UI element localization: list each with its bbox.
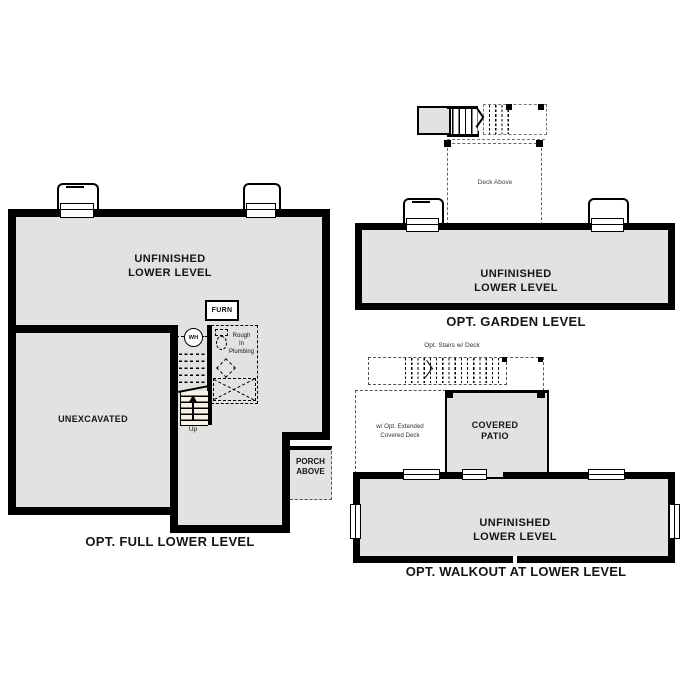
- wall: [355, 303, 675, 310]
- deck-post: [538, 104, 544, 110]
- plan-caption-full-lower: OPT. FULL LOWER LEVEL: [10, 534, 330, 550]
- window-icon: [403, 469, 440, 480]
- porch-above-label: PORCH ABOVE: [291, 457, 330, 477]
- extended-deck-label-line: w/ Opt. Extended: [376, 423, 423, 430]
- floorplan-sheet: FURN WH Up Rough In Plumbing: [0, 0, 687, 687]
- patio-post: [445, 390, 453, 398]
- window-icon: [588, 469, 625, 480]
- wall: [170, 325, 178, 533]
- floor-unexcavated: [16, 432, 170, 507]
- window-icon: [246, 203, 276, 218]
- room-label-line: LOWER LEVEL: [473, 531, 557, 543]
- wall: [668, 223, 675, 310]
- stairs-up-label: Up: [178, 426, 208, 434]
- room-label-unfinished-lower: UNFINISHED LOWER LEVEL: [90, 253, 250, 281]
- wall: [355, 223, 675, 230]
- deck-post: [444, 140, 451, 147]
- water-heater-label: WH: [189, 335, 199, 341]
- plan-caption-garden: OPT. GARDEN LEVEL: [396, 314, 636, 330]
- wall: [322, 209, 330, 440]
- patio-post: [537, 390, 545, 398]
- deck-stairs-solid: [447, 106, 479, 137]
- opt-stairs-label: Opt. Stairs w/ Deck: [372, 342, 532, 350]
- plumbing-label-line: In: [239, 341, 244, 347]
- window-icon: [669, 504, 680, 539]
- room-label-line: LOWER LEVEL: [128, 267, 212, 279]
- room-label-line: UNFINISHED: [479, 517, 550, 529]
- room-label-line: UNFINISHED: [480, 268, 551, 280]
- furnace-box: FURN: [205, 300, 239, 321]
- opt-stairs-landing-outline: [505, 357, 544, 391]
- plumbing-label-line: Rough: [233, 333, 251, 339]
- deck-post: [538, 357, 543, 362]
- stair-landing: [417, 106, 451, 135]
- window-icon: [591, 218, 624, 232]
- porch-label-line: PORCH: [296, 457, 325, 466]
- deck-post: [536, 140, 543, 147]
- wall-opening-notch: [513, 556, 517, 564]
- stair-dashed-treads: [179, 348, 207, 388]
- window-icon: [350, 504, 361, 539]
- window-icon: [60, 203, 94, 218]
- covered-patio-label: COVERED PATIO: [455, 420, 535, 443]
- plan-caption-walkout: OPT. WALKOUT AT LOWER LEVEL: [366, 564, 666, 580]
- patio-door-opening: [485, 472, 503, 479]
- window-well-tick: [412, 201, 430, 203]
- wall: [355, 223, 362, 310]
- furnace-label: FURN: [212, 307, 233, 314]
- up-arrow-head: [189, 395, 197, 402]
- pipe-dash: [176, 336, 184, 337]
- window-icon: [406, 218, 439, 232]
- tub-icon: [213, 378, 256, 401]
- room-label-unfinished-lower: UNFINISHED LOWER LEVEL: [436, 268, 596, 296]
- room-label-unfinished-lower: UNFINISHED LOWER LEVEL: [435, 517, 595, 545]
- wall: [8, 325, 178, 333]
- window-icon: [462, 469, 487, 480]
- wall: [282, 432, 290, 533]
- porch-label-line: ABOVE: [296, 467, 324, 476]
- up-arrow-shaft: [192, 399, 194, 420]
- extended-deck-label-line: Covered Deck: [380, 432, 419, 439]
- wall: [353, 472, 675, 479]
- patio-label-line: COVERED: [472, 420, 519, 430]
- wall: [10, 209, 330, 217]
- room-label-unexcavated: UNEXCAVATED: [33, 414, 153, 425]
- plumbing-label: Rough In Plumbing: [227, 333, 256, 356]
- deck-edge-dashed: [447, 139, 545, 140]
- water-heater-circle: WH: [184, 328, 203, 347]
- plumbing-label-line: Plumbing: [229, 349, 254, 355]
- deck-post: [506, 104, 512, 110]
- window-well-tick: [66, 186, 84, 188]
- floor-stair-room: [178, 432, 282, 525]
- wall: [8, 507, 178, 515]
- extended-deck-label: w/ Opt. Extended Covered Deck: [358, 422, 442, 441]
- deck-post: [502, 357, 507, 362]
- wall: [173, 525, 290, 533]
- deck-above-label: Deck Above: [447, 179, 543, 187]
- opt-stairs-treads: [400, 358, 504, 383]
- room-label-line: UNFINISHED: [134, 253, 205, 265]
- patio-label-line: PATIO: [481, 431, 509, 441]
- toilet-bowl-icon: [216, 336, 227, 350]
- wall: [8, 209, 16, 515]
- room-label-line: LOWER LEVEL: [474, 282, 558, 294]
